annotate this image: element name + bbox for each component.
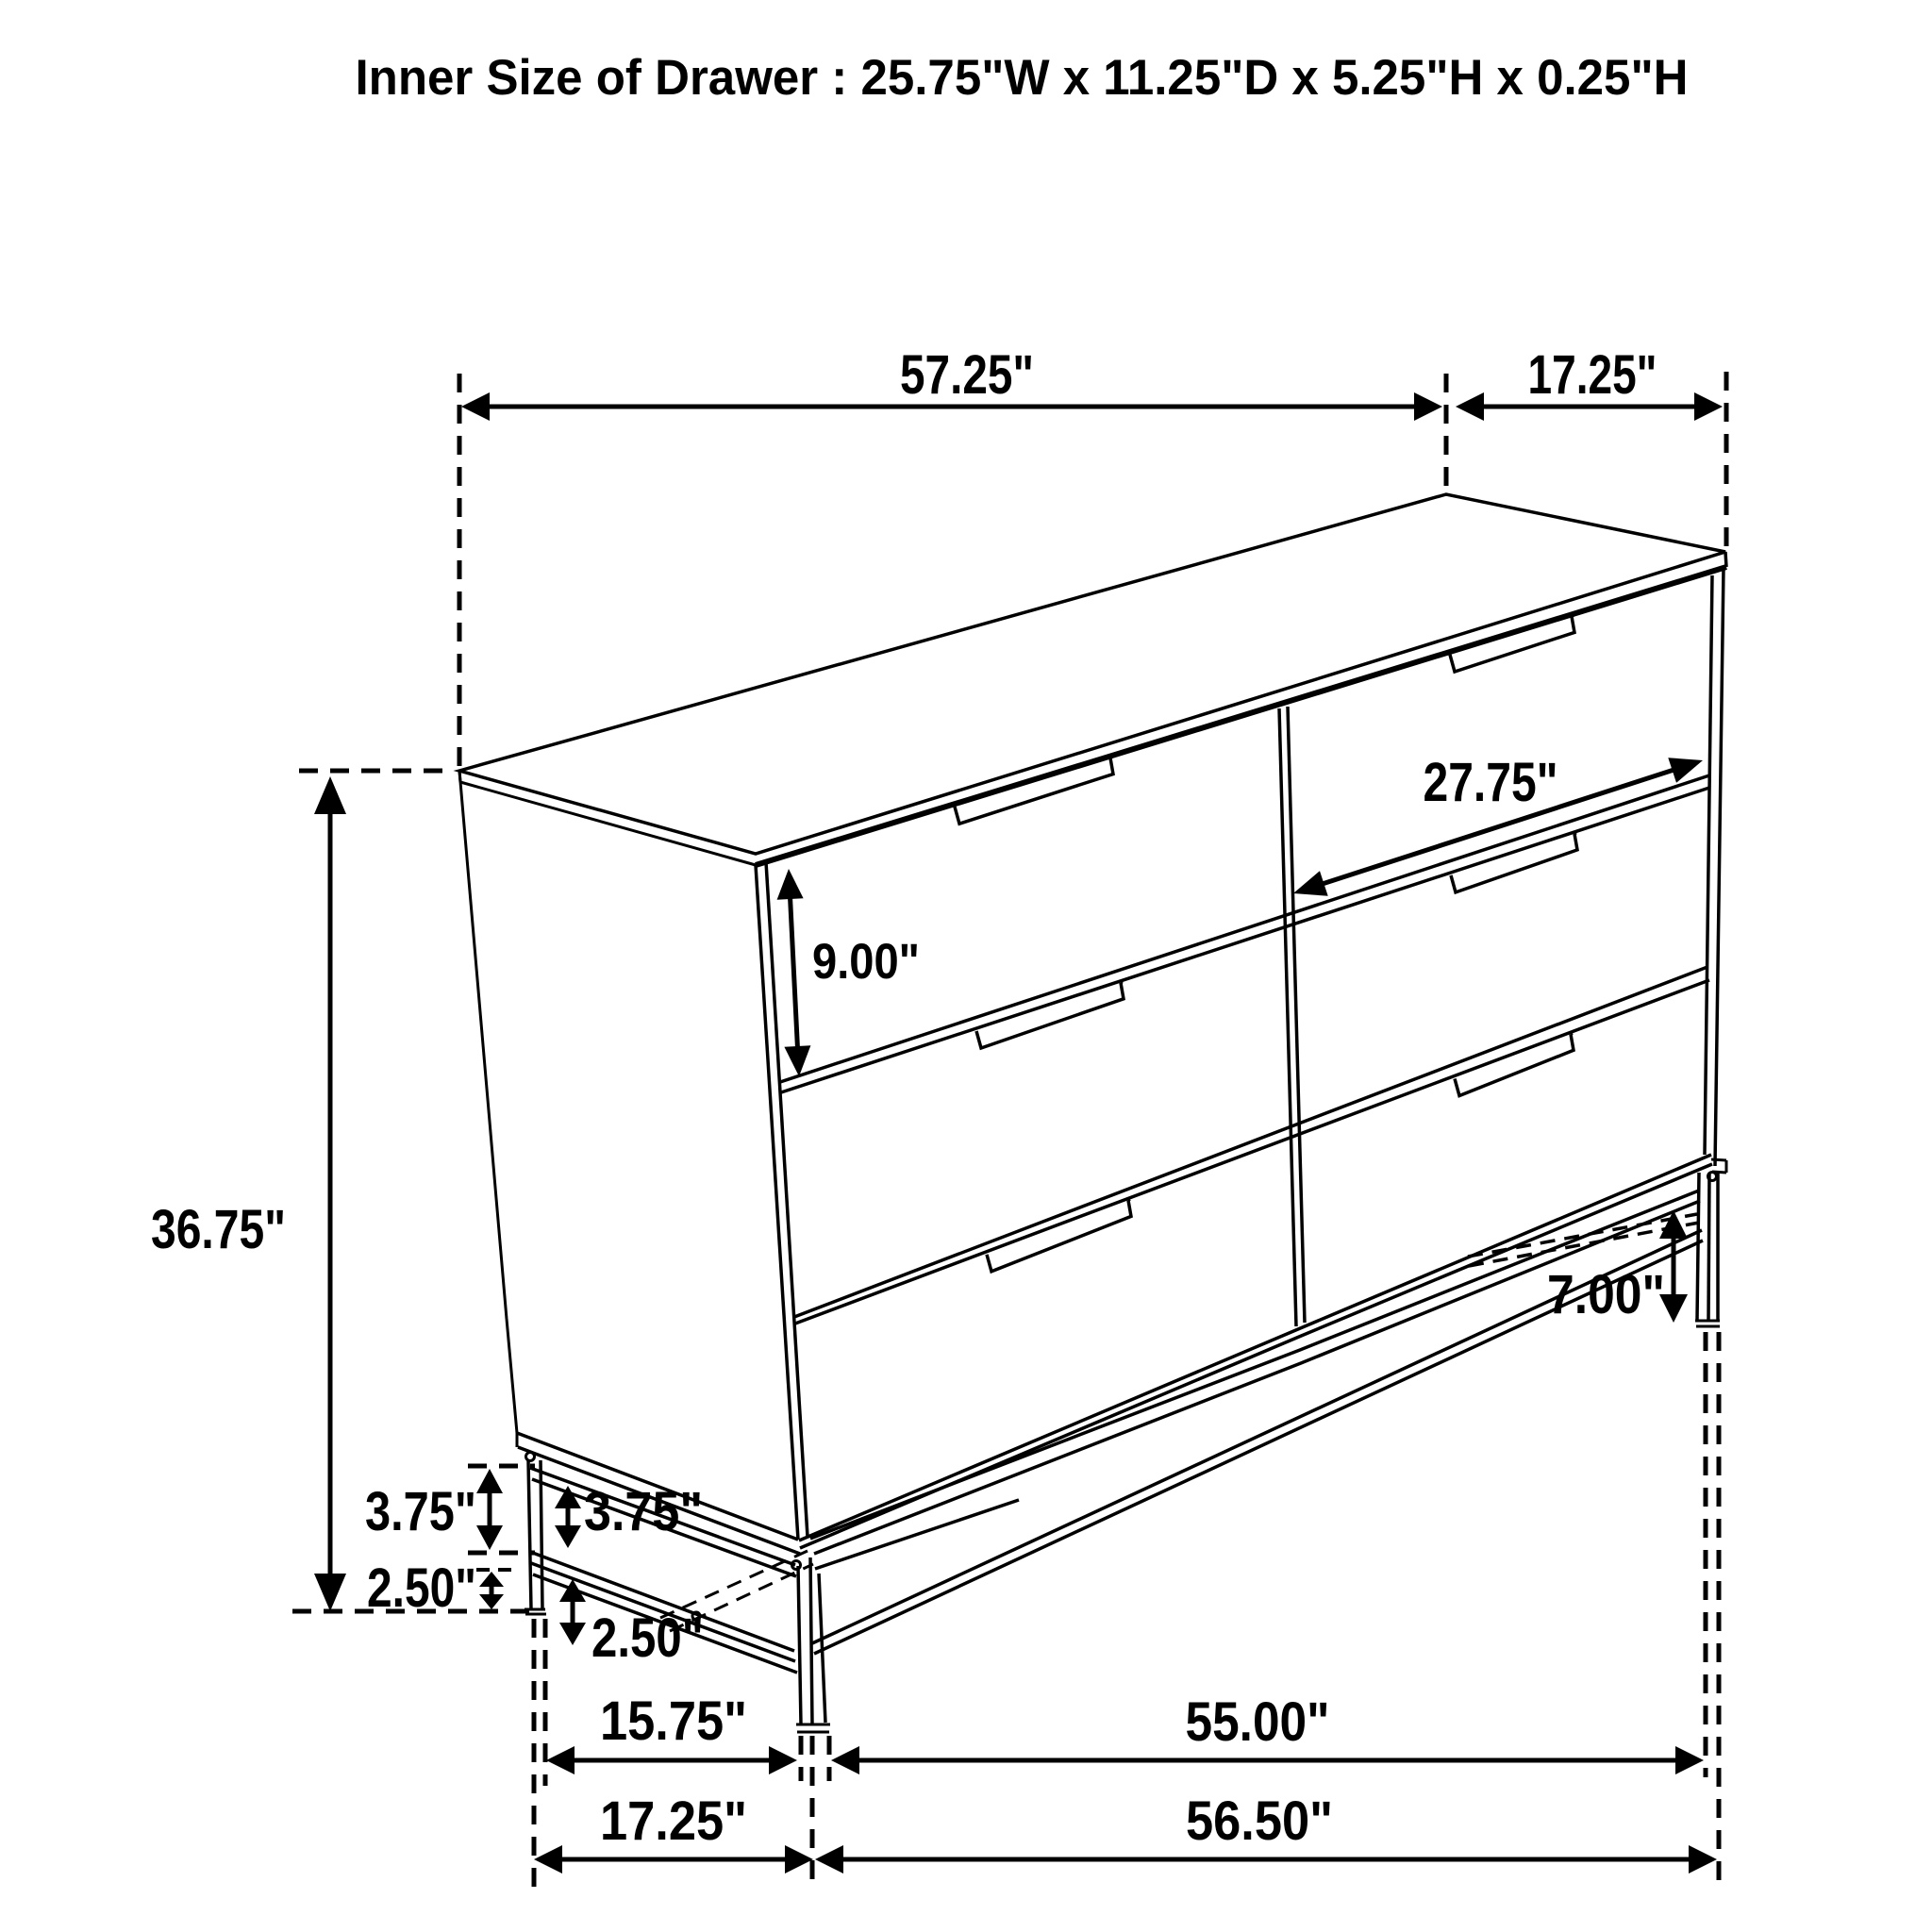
svg-text:17.25": 17.25" (600, 1790, 747, 1852)
svg-text:15.75": 15.75" (600, 1690, 747, 1752)
svg-text:55.00": 55.00" (1186, 1691, 1330, 1753)
svg-text:7.00": 7.00" (1547, 1264, 1665, 1325)
svg-text:9.00": 9.00" (812, 934, 920, 990)
svg-text:Inner Size of Drawer : 25.75"W: Inner Size of Drawer : 25.75"W x 11.25"D… (356, 50, 1689, 106)
svg-text:3.75": 3.75" (584, 1481, 703, 1542)
svg-text:27.75": 27.75" (1424, 752, 1558, 813)
svg-text:36.75": 36.75" (151, 1199, 286, 1260)
svg-text:57.25": 57.25" (900, 344, 1034, 406)
svg-text:56.50": 56.50" (1186, 1790, 1333, 1852)
svg-text:17.25": 17.25" (1528, 344, 1657, 406)
svg-text:2.50": 2.50" (591, 1607, 704, 1669)
svg-text:2.50": 2.50" (367, 1557, 476, 1619)
svg-text:3.75": 3.75" (365, 1481, 476, 1542)
